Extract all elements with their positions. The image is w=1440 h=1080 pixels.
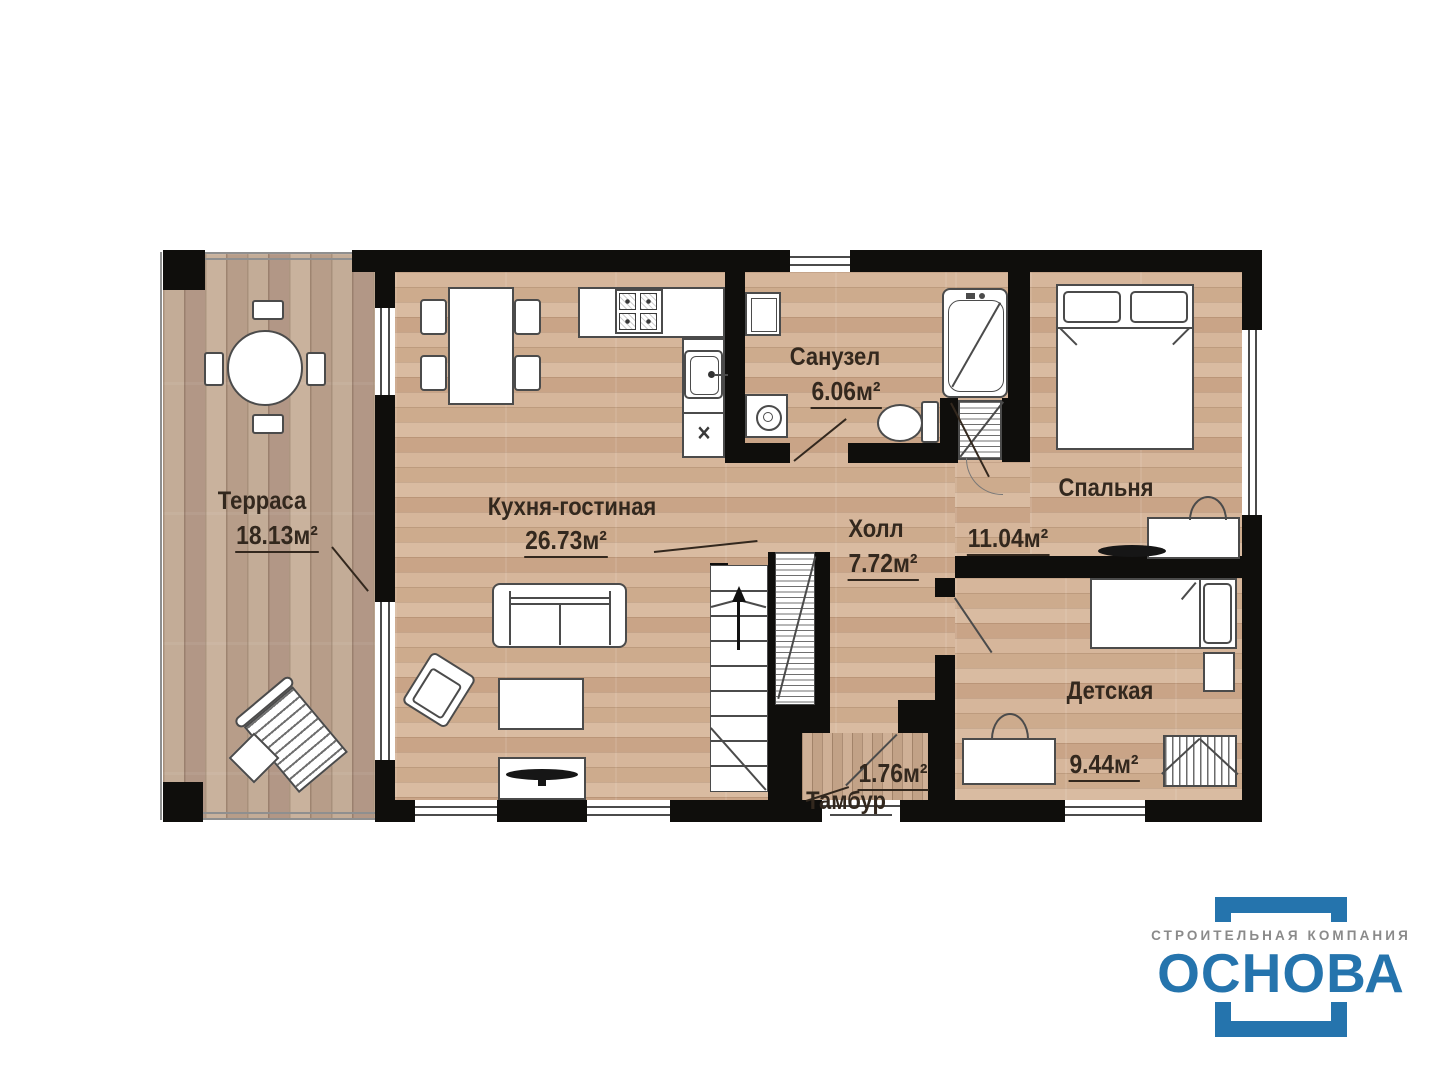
window-left-lower <box>375 602 395 760</box>
kitchen-cabinet-mark: ✕ <box>697 423 712 445</box>
window-b3-line2 <box>1065 814 1145 816</box>
sofa-armrest-left <box>509 591 511 645</box>
room-label-kids: Детская <box>1067 678 1154 706</box>
window-b1-line2 <box>415 814 497 816</box>
room-area-kids-value: 9.44м² <box>1069 749 1140 782</box>
dining-chair-4 <box>514 355 541 391</box>
kids-bed-divider <box>1199 580 1201 647</box>
window-bottom-kids <box>1065 800 1145 822</box>
stair-arrow-shaft <box>737 600 740 650</box>
terrace-post-tl <box>163 250 205 290</box>
dining-chair-2 <box>420 355 447 391</box>
kids-desk <box>962 738 1056 785</box>
room-area-terrace: 18.13м² <box>235 521 319 551</box>
window-b2-line2 <box>587 814 670 816</box>
terrace-edge-top-1 <box>205 252 352 254</box>
window-left-upper-line2 <box>388 308 390 395</box>
bed-blanket-edge <box>1058 327 1192 329</box>
window-top-line1 <box>790 256 850 258</box>
floor-plan-canvas: ✕ <box>0 0 1440 1080</box>
window-right-line1 <box>1248 330 1250 515</box>
stair-tread-5 <box>711 690 767 692</box>
terrace-post-bl <box>163 782 203 822</box>
bathtub-drain-icon <box>979 293 985 299</box>
stair-tread-6 <box>711 715 767 717</box>
room-area-bathroom-value: 6.06м² <box>811 376 882 409</box>
wall-vestibule-ne <box>898 700 930 733</box>
room-label-kitchen-living: Кухня-гостиная <box>488 494 657 522</box>
wall-kitchen-bath <box>725 272 745 463</box>
wall-closet-right <box>1002 398 1030 462</box>
window-left-upper-line1 <box>380 308 382 395</box>
terrace-chair-bottom <box>252 414 284 434</box>
room-area-hall: 7.72м² <box>848 549 919 579</box>
window-right-line2 <box>1255 330 1257 515</box>
window-left-lower-line2 <box>388 602 390 760</box>
window-bottom-living-2 <box>587 800 670 822</box>
window-b2-line1 <box>587 806 670 808</box>
window-bottom-living-1 <box>415 800 497 822</box>
kitchen-counter-divider <box>682 412 725 414</box>
stove-burner-1 <box>619 293 636 310</box>
room-label-vestibule: Тамбур <box>806 788 886 816</box>
dining-chair-3 <box>514 299 541 335</box>
bed-pillow-left <box>1063 291 1121 323</box>
dining-chair-1 <box>420 299 447 335</box>
room-area-vestibule-value: 1.76м² <box>858 758 929 791</box>
stove <box>615 289 663 334</box>
window-top-bathroom <box>790 250 850 272</box>
room-label-hall: Холл <box>848 516 903 544</box>
wall-bedroom-south <box>955 556 1242 578</box>
wall-closet-left <box>940 398 958 462</box>
sofa-armrest-right <box>609 591 611 645</box>
wall-bath-south-1 <box>745 443 790 463</box>
room-area-bathroom: 6.06м² <box>811 377 882 407</box>
wall-bedroom-west <box>1008 272 1030 398</box>
room-area-kitchen-value: 26.73м² <box>524 525 608 558</box>
room-area-vestibule: 1.76м² <box>858 759 929 789</box>
bathroom-sink <box>745 292 781 336</box>
terrace-chair-right <box>306 352 326 386</box>
room-label-bathroom: Санузел <box>790 344 880 372</box>
kitchen-sink <box>684 350 723 399</box>
terrace-edge-top-2 <box>205 258 352 260</box>
stove-burner-3 <box>619 313 636 330</box>
sofa-back-line-1 <box>510 597 609 599</box>
terrace-edge-left <box>160 252 162 820</box>
kids-bed-pillow <box>1203 583 1232 644</box>
stair-up-arrow-icon <box>732 586 746 602</box>
toilet-bowl <box>877 404 923 442</box>
room-area-bedroom-value: 11.04м² <box>967 523 1049 556</box>
washing-machine-drum-inner <box>763 412 773 422</box>
wall-kids-west-1 <box>935 578 955 597</box>
room-label-terrace: Терраса <box>218 488 306 516</box>
window-b3-line1 <box>1065 806 1145 808</box>
terrace-chair-top <box>252 300 284 320</box>
window-left-lower-line1 <box>380 602 382 760</box>
stair-tread-4 <box>711 665 767 667</box>
window-b1-line1 <box>415 806 497 808</box>
toilet-tank <box>921 401 939 443</box>
room-area-bedroom: 11.04м² <box>967 524 1049 554</box>
terrace-edge-bottom-2 <box>203 818 375 820</box>
room-area-kitchen-living: 26.73м² <box>524 526 608 556</box>
bathroom-sink-basin <box>751 298 777 332</box>
tv-stand-leg <box>538 779 546 786</box>
terrace-edge-bottom-1 <box>203 812 375 814</box>
kitchen-faucet-line <box>714 374 728 376</box>
window-right-bedroom <box>1242 330 1262 515</box>
terrace-round-table <box>227 330 303 406</box>
wall-stairs-right <box>815 552 830 705</box>
coffee-table <box>498 678 584 730</box>
sofa-seat-seam <box>559 603 561 645</box>
stove-burner-2 <box>640 293 657 310</box>
room-area-hall-value: 7.72м² <box>848 548 919 581</box>
kids-nightstand <box>1203 652 1235 692</box>
washing-machine <box>745 394 788 438</box>
window-left-upper <box>375 308 395 395</box>
bed-pillow-right <box>1130 291 1188 323</box>
stair-tread-8 <box>711 765 767 767</box>
bathtub-faucet-icon <box>966 293 975 299</box>
window-top-line2 <box>790 264 850 266</box>
logo-name: ОСНОВА <box>1157 941 1405 1005</box>
room-area-kids: 9.44м² <box>1069 750 1140 780</box>
wall-vestibule-east <box>928 700 955 800</box>
stove-burner-4 <box>640 313 657 330</box>
stair-tread-7 <box>711 740 767 742</box>
dining-table <box>448 287 514 405</box>
room-label-bedroom: Спальня <box>1058 475 1153 503</box>
bedroom-tv <box>1098 545 1166 557</box>
terrace-chair-left <box>204 352 224 386</box>
room-area-terrace-value: 18.13м² <box>235 520 319 553</box>
